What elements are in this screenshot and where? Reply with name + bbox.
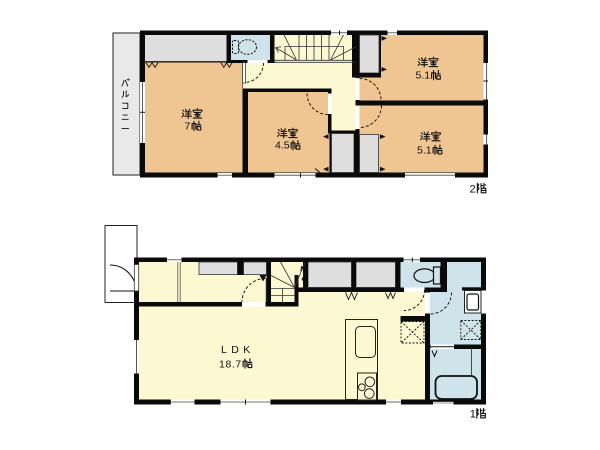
svg-text:4.5: 4.5 xyxy=(275,140,290,152)
svg-text:5.1: 5.1 xyxy=(416,70,431,82)
svg-text:2: 2 xyxy=(470,184,476,196)
svg-text:7: 7 xyxy=(185,121,191,133)
svg-text:LDK: LDK xyxy=(221,344,255,356)
svg-text:1: 1 xyxy=(470,409,476,421)
svg-text:18.7: 18.7 xyxy=(219,358,242,370)
svg-text:5.1: 5.1 xyxy=(417,144,432,156)
